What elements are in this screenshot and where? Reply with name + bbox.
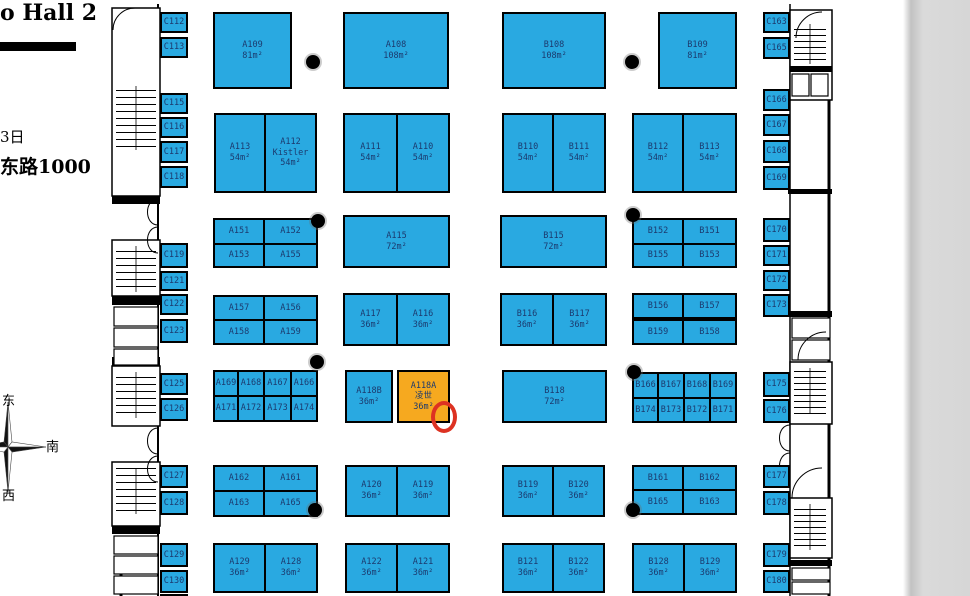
highlight-circle-annotation [431,401,457,433]
booth-A172[interactable]: A172 [237,395,265,422]
booth-label: C171 [766,250,786,261]
booth-B110[interactable]: B11054m² [502,113,554,193]
booth-label: C113 [164,42,184,53]
booth-label: A167 [267,378,287,389]
booth-C122[interactable]: C122 [160,294,188,315]
booth-C123[interactable]: C123 [160,319,188,343]
booth-A108[interactable]: A108108m² [343,12,449,89]
booth-label: A111 [360,142,380,153]
booth-label: 72m² [386,242,406,253]
booth-A167[interactable]: A167 [263,370,292,397]
booth-C169[interactable]: C169 [763,166,790,190]
booth-label: C128 [164,498,184,509]
booth-label: A157 [229,303,249,314]
booth-label: A128 [281,557,301,568]
booth-label: 54m² [280,158,300,169]
booth-label: B161 [648,473,668,484]
booth-label: C112 [164,17,184,28]
booth-A129[interactable]: A12936m² [213,543,266,593]
booth-label: B153 [699,250,719,261]
booth-label: A152 [280,226,300,237]
booth-A153[interactable]: A153 [213,243,265,268]
booth-label: B171 [713,405,733,416]
booth-label: B167 [661,380,681,391]
booth-A168[interactable]: A168 [237,370,265,397]
booth-label: C168 [766,146,786,157]
booth-label: A110 [413,142,433,153]
booth-B161[interactable]: B161 [632,465,684,491]
booth-B129[interactable]: B12936m² [683,543,737,593]
booth-A169[interactable]: A169 [213,370,239,397]
booth-label: C116 [164,122,184,133]
structural-column-dot [627,365,641,379]
event-date-text: 3日 [0,126,25,147]
booth-label: B166 [635,380,655,391]
booth-label: C123 [164,326,184,337]
booth-label: A158 [229,327,249,338]
booth-C127[interactable]: C127 [160,465,188,488]
booth-label: A122 [361,557,381,568]
booth-C170[interactable]: C170 [763,218,790,242]
booth-label: B116 [517,309,537,320]
booth-label: 36m² [517,320,537,331]
booth-label: C121 [164,276,184,287]
booth-label: C172 [766,275,786,286]
booth-label: C173 [766,300,786,311]
booth-C180[interactable]: C180 [763,570,790,593]
booth-B174[interactable]: B174 [632,397,659,423]
booth-label: B165 [648,497,668,508]
booth-C175[interactable]: C175 [763,372,790,397]
booth-label: B168 [687,380,707,391]
booth-label: 108m² [541,51,567,62]
booth-label: 36m² [413,491,433,502]
booth-label: 36m² [648,568,668,579]
booth-B121[interactable]: B12136m² [502,543,554,593]
booth-label: B155 [648,250,668,261]
booth-label: 72m² [544,397,564,408]
booth-label: 54m² [518,153,538,164]
booth-label: B174 [635,405,655,416]
booth-label: 36m² [568,491,588,502]
booth-C172[interactable]: C172 [763,270,790,291]
booth-B158[interactable]: B158 [682,319,737,345]
booth-label: C126 [164,404,184,415]
booth-A157[interactable]: A157 [213,295,265,321]
booth-label: B109 [687,40,707,51]
booth-C167[interactable]: C167 [763,114,790,136]
booth-B108[interactable]: B108108m² [502,12,606,89]
booth-label: 凌世 [415,391,432,402]
booth-label: A116 [413,309,433,320]
booth-label: A119 [413,480,433,491]
booth-B156[interactable]: B156 [632,293,684,319]
booth-label: 81m² [242,51,262,62]
booth-label: B157 [699,301,719,312]
booth-label: C169 [766,173,786,184]
booth-label: C118 [164,172,184,183]
booth-A122[interactable]: A12236m² [345,543,398,593]
booth-label: A118A [411,381,437,392]
booth-label: B117 [569,309,589,320]
booth-label: A165 [280,498,300,509]
booth-C163[interactable]: C163 [763,12,790,33]
booth-B157[interactable]: B157 [682,293,737,319]
booth-B173[interactable]: B173 [657,397,685,423]
booth-C115[interactable]: C115 [160,93,188,114]
booth-B167[interactable]: B167 [657,372,685,399]
booth-label: A151 [229,226,249,237]
booth-C125[interactable]: C125 [160,373,188,395]
booth-label: B172 [687,405,707,416]
booth-A128[interactable]: A12836m² [264,543,318,593]
booth-layer: C112C113A10981m²A108108m²B108108m²B10981… [0,0,970,596]
structural-column-dot [306,55,320,69]
booth-label: 36m² [569,320,589,331]
booth-C116[interactable]: C116 [160,117,188,138]
booth-label: 36m² [518,491,538,502]
booth-label: B128 [648,557,668,568]
booth-B151[interactable]: B151 [682,218,737,245]
booth-A161[interactable]: A161 [263,465,318,492]
booth-label: 36m² [568,568,588,579]
booth-label: 54m² [360,153,380,164]
booth-B119[interactable]: B11936m² [502,465,554,517]
booth-label: C175 [766,379,786,390]
booth-label: 36m² [281,568,301,579]
booth-A115[interactable]: A11572m² [343,215,450,268]
booth-A119[interactable]: A11936m² [396,465,450,517]
booth-C166[interactable]: C166 [763,89,790,111]
booth-A158[interactable]: A158 [213,319,265,345]
booth-B120[interactable]: B12036m² [552,465,605,517]
booth-A151[interactable]: A151 [213,218,265,245]
booth-B122[interactable]: B12236m² [552,543,605,593]
booth-A110[interactable]: A11054m² [396,113,450,193]
booth-label: 36m² [361,491,381,502]
booth-C171[interactable]: C171 [763,245,790,266]
booth-label: A163 [229,498,249,509]
booth-label: 36m² [518,568,538,579]
structural-column-dot [626,503,640,517]
booth-label: A108 [386,40,406,51]
booth-label: C165 [766,43,786,54]
booth-label: B112 [648,142,668,153]
booth-label: 54m² [413,153,433,164]
booth-A174[interactable]: A174 [290,395,318,422]
booth-label: A173 [267,403,287,414]
booth-label: 54m² [569,153,589,164]
booth-label: B122 [568,557,588,568]
booth-B116[interactable]: B11636m² [500,293,554,346]
booth-label: C117 [164,147,184,158]
booth-label: B108 [544,40,564,51]
booth-label: B121 [518,557,538,568]
booth-label: C180 [766,576,786,587]
booth-A171[interactable]: A171 [213,395,239,422]
booth-C121[interactable]: C121 [160,271,188,291]
booth-label: B129 [700,557,720,568]
booth-C168[interactable]: C168 [763,140,790,163]
booth-label: A115 [386,231,406,242]
booth-label: B120 [568,480,588,491]
booth-C179[interactable]: C179 [763,543,790,567]
booth-A111[interactable]: A11154m² [343,113,398,193]
booth-B163[interactable]: B163 [682,489,737,515]
booth-label: 54m² [699,153,719,164]
booth-label: C122 [164,299,184,310]
booth-C118[interactable]: C118 [160,166,188,188]
booth-label: A129 [229,557,249,568]
booth-label: A168 [241,378,261,389]
booth-A116[interactable]: A11636m² [396,293,450,346]
booth-label: B118 [544,386,564,397]
booth-A163[interactable]: A163 [213,490,265,517]
booth-label: C127 [164,471,184,482]
booth-A173[interactable]: A173 [263,395,292,422]
booth-label: C119 [164,250,184,261]
booth-A112[interactable]: A112Kistler54m² [264,113,317,193]
booth-label: A169 [216,378,236,389]
floorplan-stage: C112C113A10981m²A108108m²B108108m²B10981… [0,0,970,596]
booth-A156[interactable]: A156 [263,295,318,321]
booth-label: 36m² [361,568,381,579]
booth-C117[interactable]: C117 [160,141,188,163]
booth-B153[interactable]: B153 [682,243,737,268]
booth-C178[interactable]: C178 [763,491,790,515]
booth-label: Kistler [273,148,309,159]
booth-label: B111 [569,142,589,153]
booth-B155[interactable]: B155 [632,243,684,268]
booth-C128[interactable]: C128 [160,491,188,515]
booth-label: C125 [164,379,184,390]
booth-A162[interactable]: A162 [213,465,265,492]
booth-A152[interactable]: A152 [263,218,318,245]
booth-label: 72m² [543,242,563,253]
booth-label: B158 [699,327,719,338]
booth-label: C178 [766,498,786,509]
booth-label: A109 [242,40,262,51]
booth-B118[interactable]: B11872m² [502,370,607,423]
booth-B115[interactable]: B11572m² [500,215,607,268]
structural-column-dot [626,208,640,222]
booth-B168[interactable]: B168 [683,372,711,399]
booth-C119[interactable]: C119 [160,243,188,268]
compass-label-west: 西 [2,485,15,504]
booth-label: 36m² [229,568,249,579]
page-edge-shadow [903,0,970,596]
booth-label: C167 [766,120,786,131]
booth-B112[interactable]: B11254m² [632,113,684,193]
booth-B128[interactable]: B12836m² [632,543,685,593]
booth-label: B173 [661,405,681,416]
booth-label: 108m² [383,51,409,62]
booth-label: B156 [648,301,668,312]
booth-label: B115 [543,231,563,242]
booth-B162[interactable]: B162 [682,465,737,491]
booth-label: A117 [360,309,380,320]
booth-label: C129 [164,550,184,561]
booth-label: A172 [241,403,261,414]
booth-label: A159 [280,327,300,338]
structural-column-dot [311,214,325,228]
booth-B171[interactable]: B171 [709,397,737,423]
booth-A121[interactable]: A12136m² [396,543,450,593]
booth-B152[interactable]: B152 [632,218,684,245]
booth-label: 54m² [648,153,668,164]
structural-column-dot [625,55,639,69]
booth-label: A162 [229,473,249,484]
booth-label: B119 [518,480,538,491]
booth-B109[interactable]: B10981m² [658,12,737,89]
booth-label: 36m² [413,402,433,413]
booth-label: A153 [229,250,249,261]
booth-C113[interactable]: C113 [160,37,188,58]
booth-label: 54m² [230,153,250,164]
booth-A155[interactable]: A155 [263,243,318,268]
booth-C130[interactable]: C130 [160,570,188,593]
booth-label: B162 [699,473,719,484]
booth-B113[interactable]: B11354m² [682,113,737,193]
booth-label: B110 [518,142,538,153]
booth-label: A161 [280,473,300,484]
booth-A118B[interactable]: A118B36m² [345,370,393,423]
booth-label: B159 [648,327,668,338]
booth-label: C115 [164,98,184,109]
booth-label: C163 [766,17,786,28]
booth-C112[interactable]: C112 [160,12,188,33]
booth-label: 36m² [413,568,433,579]
booth-label: A118B [356,386,382,397]
booth-label: C179 [766,550,786,561]
booth-label: 36m² [413,320,433,331]
title-underline [0,42,76,51]
booth-label: A156 [280,303,300,314]
booth-label: C130 [164,576,184,587]
structural-column-dot [308,503,322,517]
structural-column-dot [310,355,324,369]
booth-C126[interactable]: C126 [160,398,188,421]
booth-A120[interactable]: A12036m² [345,465,398,517]
booth-label: C170 [766,225,786,236]
booth-label: B151 [699,226,719,237]
booth-B117[interactable]: B11736m² [552,293,607,346]
booth-label: A113 [230,142,250,153]
booth-C176[interactable]: C176 [763,399,790,423]
booth-label: B113 [699,142,719,153]
booth-label: 36m² [359,397,379,408]
booth-label: A155 [280,250,300,261]
booth-C177[interactable]: C177 [763,465,790,488]
booth-label: A174 [294,403,314,414]
booth-label: C177 [766,471,786,482]
booth-label: B169 [713,380,733,391]
booth-C173[interactable]: C173 [763,294,790,317]
booth-A109[interactable]: A10981m² [213,12,292,89]
booth-A166[interactable]: A166 [290,370,318,397]
booth-B172[interactable]: B172 [683,397,711,423]
booth-C165[interactable]: C165 [763,37,790,59]
booth-C129[interactable]: C129 [160,543,188,567]
address-text: 东路1000 [0,152,91,179]
booth-B111[interactable]: B11154m² [552,113,606,193]
booth-A113[interactable]: A11354m² [214,113,266,193]
booth-label: A120 [361,480,381,491]
booth-label: C176 [766,406,786,417]
booth-label: 36m² [360,320,380,331]
booth-label: A166 [294,378,314,389]
booth-A159[interactable]: A159 [263,319,318,345]
booth-label: A171 [216,403,236,414]
booth-label: C166 [766,95,786,106]
booth-label: B163 [699,497,719,508]
booth-label: 81m² [687,51,707,62]
page-title: o Hall 2 [0,0,97,26]
booth-B159[interactable]: B159 [632,319,684,345]
compass-label-east: 东 [2,390,15,409]
compass-label-south: 南 [46,436,59,455]
booth-label: A112 [280,137,300,148]
booth-label: B152 [648,226,668,237]
booth-B169[interactable]: B169 [709,372,737,399]
booth-A117[interactable]: A11736m² [343,293,398,346]
booth-label: A121 [413,557,433,568]
booth-label: 36m² [700,568,720,579]
